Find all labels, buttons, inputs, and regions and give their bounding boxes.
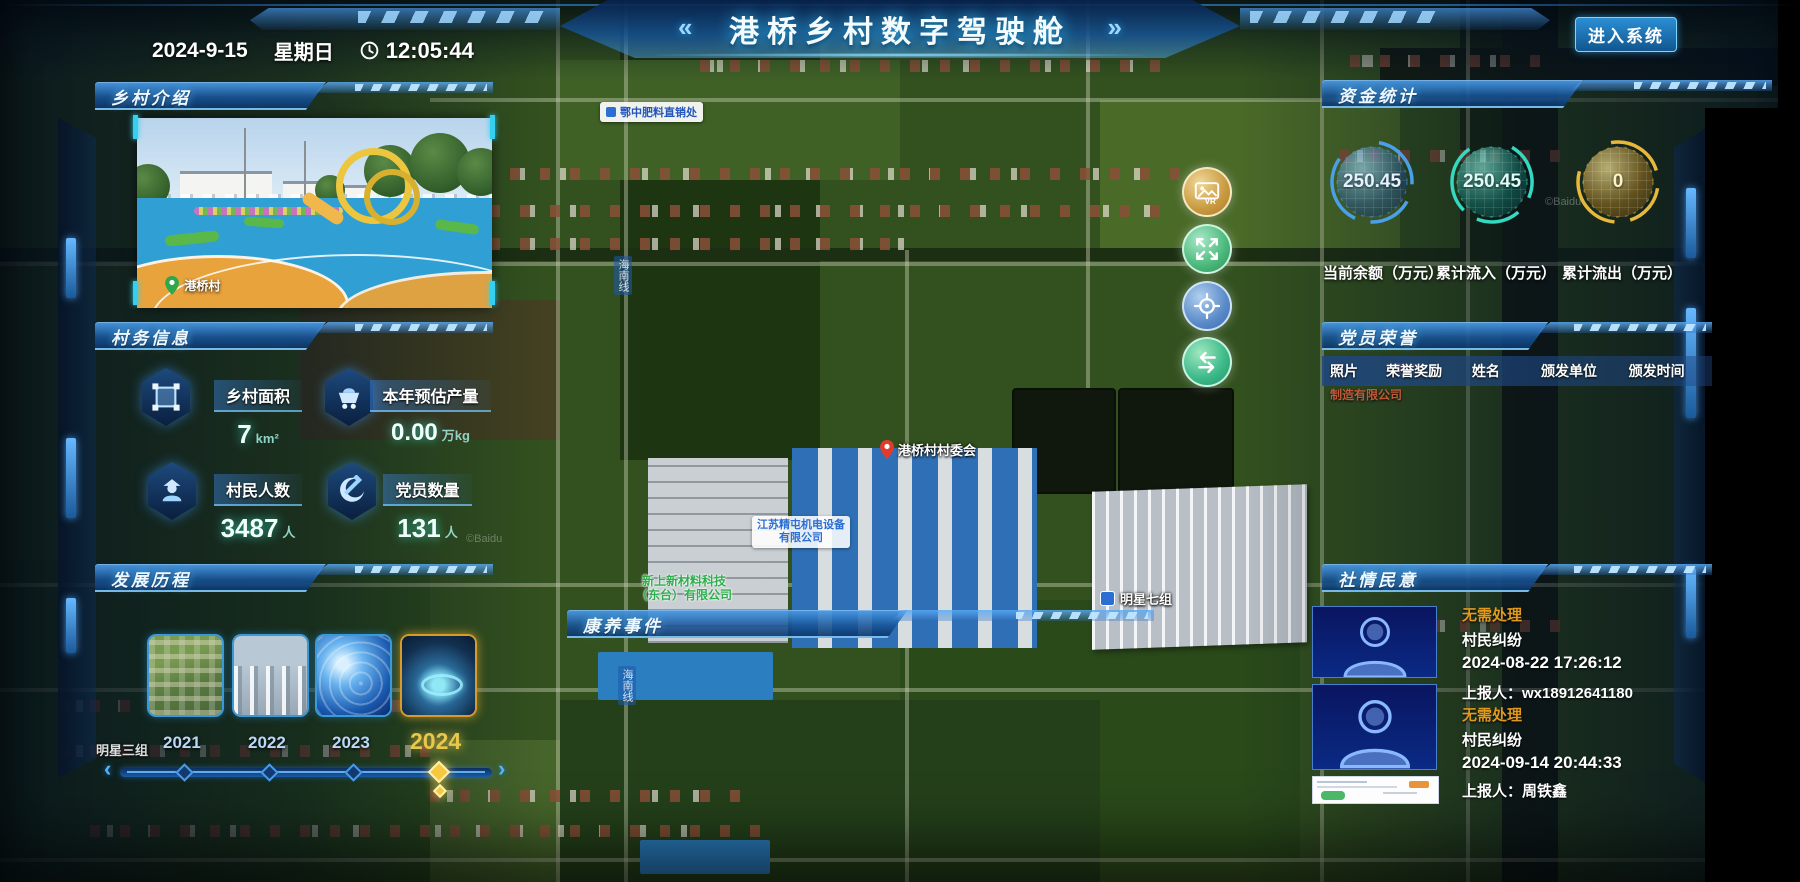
gauge-total-outflow: 0: [1574, 138, 1662, 226]
time-text: 12:05:44: [386, 38, 474, 64]
poi-label-line2: （东台）有限公司: [636, 588, 732, 602]
header-wing-left: [250, 8, 560, 30]
development-card-2024[interactable]: [400, 634, 477, 717]
person-icon: [155, 474, 189, 508]
header-wing-right: [1240, 8, 1550, 30]
stat-label: 村民人数: [214, 474, 302, 506]
party-emblem-icon: [336, 475, 368, 507]
map-road: [624, 0, 628, 882]
poi-icon: [606, 107, 616, 117]
frame-light: [66, 238, 76, 298]
photo-location-tag: 港桥村: [165, 276, 220, 295]
hatch-stripes: [358, 11, 550, 23]
poi-label-line2: 有限公司: [757, 532, 845, 545]
village-photo: 港桥村: [137, 118, 492, 308]
area-icon: [149, 380, 183, 414]
map-road-label: 海南线: [618, 666, 636, 705]
stat-estimated-yield: 本年预估产量 0.00万kg: [358, 380, 503, 447]
panel-header-funds: 资金统计: [1322, 78, 1772, 108]
enter-system-button[interactable]: 进入系统: [1575, 17, 1677, 52]
column-header-issuer: 颁发单位: [1533, 361, 1621, 381]
place-label: 明星七组: [1120, 589, 1172, 608]
page-title: 港桥乡村数字驾驶舱: [560, 0, 1240, 58]
opinion-time: 2024-08-22 17:26:12: [1462, 653, 1712, 673]
panel-title: 社情民意: [1338, 566, 1418, 591]
person-avatar-icon: [1325, 691, 1425, 769]
panel-header-village-intro: 乡村介绍: [95, 80, 493, 110]
person-avatar-icon: [1330, 611, 1420, 677]
opinion-item-avatar[interactable]: [1312, 684, 1437, 770]
poi-label: 港桥村村委会: [898, 440, 976, 459]
hatch-stripes: [1634, 82, 1766, 89]
stat-unit: km²: [256, 431, 279, 446]
photo-corner-accent: [133, 115, 138, 139]
opinion-time: 2024-09-14 20:44:33: [1462, 753, 1712, 773]
panel-title: 资金统计: [1338, 82, 1418, 107]
map-blue-roof: [640, 840, 770, 874]
stat-unit: 人: [282, 525, 295, 540]
locate-target-icon: [1192, 291, 1222, 321]
photo-corner-accent: [490, 115, 495, 139]
frame-light: [1686, 188, 1696, 258]
opinion-type: 村民纠纷: [1462, 629, 1712, 650]
map-poi-company-green[interactable]: 新上新材料科技 （东台）有限公司: [636, 574, 732, 602]
screen-black-edge: [1778, 0, 1800, 882]
hatch-stripes: [355, 84, 487, 91]
opinion-item-thumbnail[interactable]: [1312, 776, 1439, 804]
column-header-name: 姓名: [1464, 361, 1533, 381]
party-honor-table-header: 照片 荣誉奖励 姓名 颁发单位 颁发时间: [1322, 356, 1712, 386]
stat-party-member-count: 党员数量 131人: [365, 474, 490, 544]
stat-value: 0.00: [391, 419, 438, 446]
panel-title: 康养事件: [583, 612, 663, 637]
map-poi-village-committee[interactable]: 港桥村村委会: [880, 440, 976, 459]
datetime-display: 2024-9-15 星期日 12:05:44: [152, 36, 474, 65]
gauge-total-inflow: 250.45: [1448, 138, 1536, 226]
timeline-year-2022[interactable]: 2022: [248, 733, 286, 753]
left-frame-decoration: [58, 118, 96, 778]
stat-label: 本年预估产量: [370, 380, 490, 412]
opinion-item-avatar[interactable]: [1312, 606, 1437, 678]
date-text: 2024-9-15: [152, 39, 248, 63]
stat-unit: 万kg: [442, 428, 470, 443]
hatch-stripes: [1574, 566, 1706, 573]
column-header-award: 荣誉奖励: [1378, 361, 1464, 381]
column-header-issue-date: 颁发时间: [1621, 361, 1712, 381]
gauge-value: 250.45: [1328, 138, 1416, 226]
map-tool-locate-center-button[interactable]: [1182, 281, 1232, 331]
panel-header-public-opinion: 社情民意: [1322, 562, 1712, 592]
title-right-arrows-icon: »: [1108, 12, 1122, 43]
panel-title: 乡村介绍: [111, 84, 191, 109]
swap-arrows-icon: [1192, 347, 1222, 377]
opinion-item-text[interactable]: 无需处理 村民纠纷 2024-08-22 17:26:12: [1462, 604, 1712, 673]
map-place-group7: 明星七组: [1100, 589, 1172, 608]
stat-label: 乡村面积: [214, 380, 302, 412]
stat-value: 3487: [221, 513, 279, 543]
gauge-current-balance: 250.45: [1328, 138, 1416, 226]
weekday-text: 星期日: [274, 36, 334, 65]
panel-header-health-events: 康养事件: [567, 608, 1154, 638]
development-card-2021[interactable]: [147, 634, 224, 717]
red-pin-icon: [880, 440, 894, 459]
opinion-reporter: 上报人：wx18912641180: [1462, 682, 1633, 703]
expand-arrows-icon: [1192, 234, 1222, 264]
frame-light: [66, 438, 76, 518]
timeline-year-2024[interactable]: 2024: [410, 728, 461, 755]
panel-title: 村务信息: [111, 324, 191, 349]
development-card-2023[interactable]: [315, 634, 392, 717]
map-road: [556, 0, 560, 882]
hatch-stripes: [355, 566, 487, 573]
column-header-photo: 照片: [1322, 361, 1378, 381]
map-tool-swap-refresh-button[interactable]: [1182, 337, 1232, 387]
poi-label-line1: 江苏精屯机电设备: [757, 519, 845, 532]
frame-light: [66, 598, 76, 653]
gauge-value: 0: [1574, 138, 1662, 226]
clock-icon: [360, 41, 379, 60]
photo-corner-accent: [133, 281, 138, 305]
opinion-reporter: 上报人：周铁鑫: [1462, 780, 1567, 801]
map-poi-fertilizer-store[interactable]: 鄂中肥料直销处: [600, 102, 703, 122]
photo-corner-accent: [490, 281, 495, 305]
status-badge: 无需处理: [1462, 604, 1712, 625]
timeline-prev-arrow-icon[interactable]: ‹: [104, 760, 111, 778]
stat-icon-villagers: [146, 462, 198, 520]
right-frame-decoration: [1674, 128, 1706, 783]
map-tool-expand-fullscreen-button[interactable]: [1182, 224, 1232, 274]
hatch-stripes: [1574, 324, 1706, 331]
main-title-banner: « 港桥乡村数字驾驶舱 »: [560, 0, 1240, 58]
gauge-value: 250.45: [1448, 138, 1536, 226]
stat-icon-area: [140, 368, 192, 426]
stat-value: 7: [237, 419, 251, 449]
poi-label: 鄂中肥料直销处: [620, 104, 697, 120]
opinion-type: 村民纠纷: [1462, 729, 1712, 750]
development-card-2022[interactable]: [232, 634, 309, 717]
poi-label-line1: 新上新材料科技: [636, 574, 732, 588]
photo-location-text: 港桥村: [184, 277, 220, 294]
opinion-item-text[interactable]: 无需处理 村民纠纷 2024-09-14 20:44:33: [1462, 704, 1712, 773]
map-pond: [1118, 388, 1234, 494]
stat-value: 131: [397, 513, 440, 543]
bus-stop-icon: [1100, 591, 1115, 606]
panel-header-party-honor: 党员荣誉: [1322, 320, 1712, 350]
gauge-label: 累计流出（万元）: [1542, 262, 1702, 283]
timeline-year-2023[interactable]: 2023: [332, 733, 370, 753]
panel-header-development: 发展历程: [95, 562, 493, 592]
dashboard-screen: 鄂中肥料直销处 港桥村村委会 江苏精屯机电设备 有限公司 新上新材料科技 （东台…: [0, 0, 1800, 882]
timeline-year-2021[interactable]: 2021: [163, 733, 201, 753]
map-poi-company-partial-bottom: 制造有限公司: [1330, 386, 1402, 403]
panel-title: 发展历程: [111, 566, 191, 591]
green-pin-icon: [165, 276, 179, 295]
map-tool-vr-panorama-button[interactable]: VR: [1182, 167, 1232, 217]
hatch-stripes: [355, 324, 487, 331]
svg-text:VR: VR: [1205, 197, 1216, 206]
panel-header-village-info: 村务信息: [95, 320, 493, 350]
stat-unit: 人: [445, 525, 458, 540]
hatch-stripes: [1016, 612, 1148, 619]
timeline-next-arrow-icon[interactable]: ›: [498, 760, 505, 778]
status-badge: 无需处理: [1462, 704, 1712, 725]
vr-panorama-icon: VR: [1191, 176, 1223, 208]
stat-villager-count: 村民人数 3487人: [198, 474, 318, 544]
panel-title: 党员荣誉: [1338, 324, 1418, 349]
map-road-label: 海南线: [614, 256, 632, 295]
hatch-stripes: [1250, 11, 1442, 23]
stat-village-area: 乡村面积 7km²: [198, 380, 318, 450]
map-poi-company-blue[interactable]: 江苏精屯机电设备 有限公司: [752, 516, 850, 548]
stat-label: 党员数量: [383, 474, 471, 506]
